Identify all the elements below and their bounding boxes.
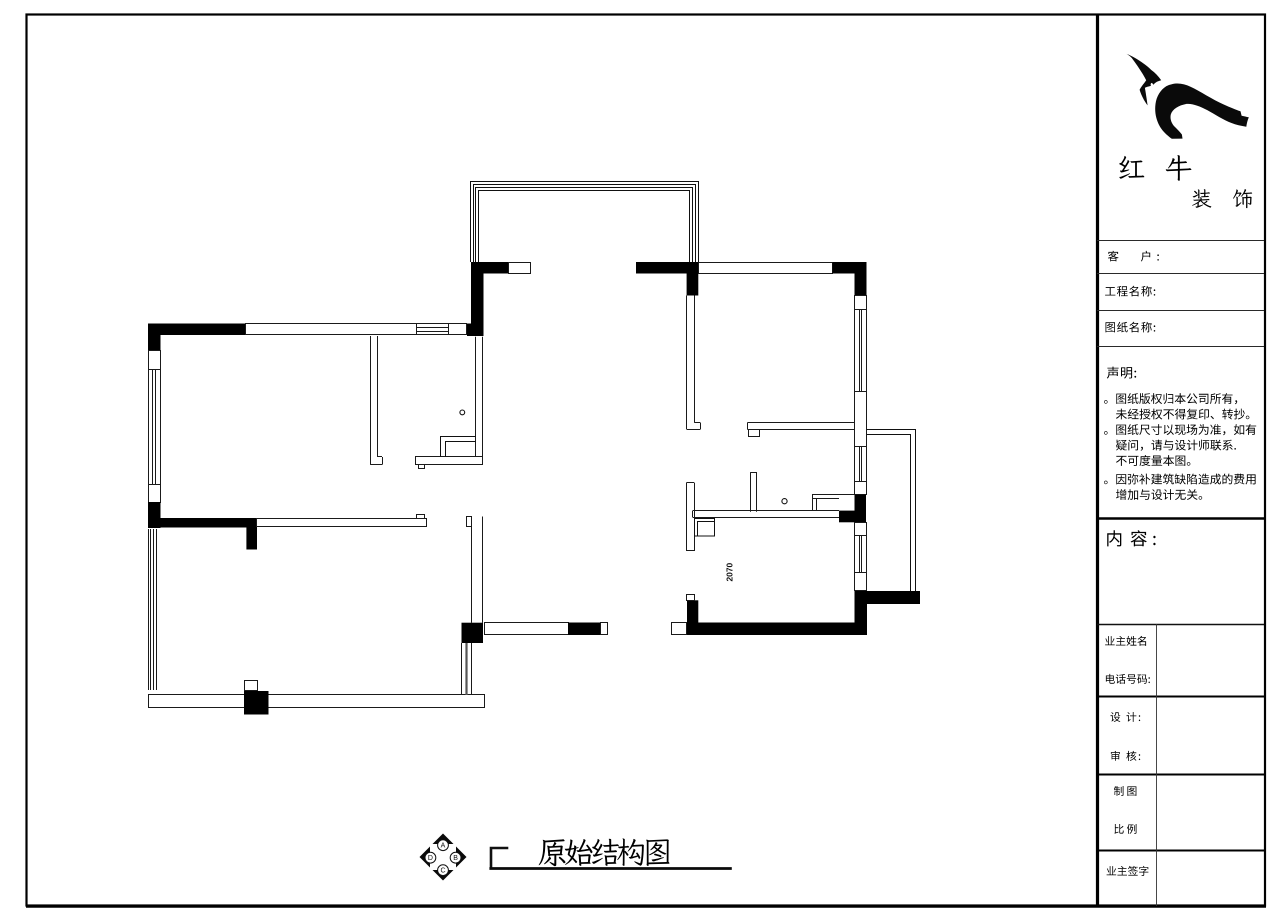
svg-text:2070: 2070 bbox=[725, 563, 735, 582]
svg-text:B: B bbox=[453, 855, 458, 862]
svg-text:D: D bbox=[428, 855, 433, 862]
svg-text:A: A bbox=[441, 843, 446, 850]
svg-text:C: C bbox=[440, 868, 445, 875]
